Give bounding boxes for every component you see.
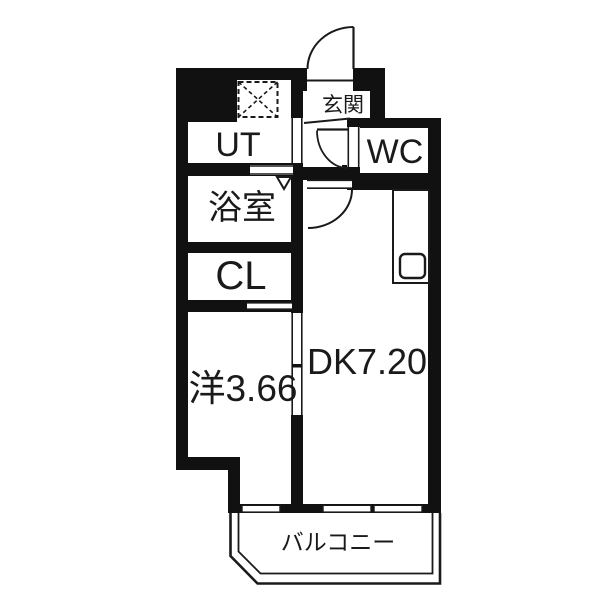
kitchen-sink — [400, 254, 425, 278]
wall-genkan-left — [291, 91, 303, 118]
wall-left-outer — [176, 68, 188, 470]
window-dk-left — [323, 505, 371, 512]
wall-wc-bottom — [347, 173, 441, 190]
label-bathroom: 浴室 — [208, 189, 276, 227]
wall-genkan-left-upper — [291, 68, 307, 91]
wall-wc-top — [347, 118, 441, 128]
wall-top-left — [176, 68, 291, 80]
sliding-door-tick — [292, 364, 303, 368]
wall-middle-lower — [291, 415, 303, 513]
windows — [242, 505, 422, 512]
window-western-room — [242, 505, 280, 512]
wall-middle-upper — [291, 163, 303, 313]
floorplan-svg: 玄関 UT WC 浴室 CL DK7.20 洋3.66 バルコニー — [0, 0, 600, 600]
wall-bathroom-bottom — [176, 242, 303, 253]
wall-genkan-right — [370, 91, 385, 120]
kitchen — [393, 190, 429, 283]
wall-hall-bottom — [303, 167, 347, 180]
floorplan-canvas: 玄関 UT WC 浴室 CL DK7.20 洋3.66 バルコニー — [0, 0, 600, 600]
label-western-room: 洋3.66 — [188, 368, 297, 409]
label-balcony: バルコニー — [281, 529, 396, 555]
label-closet: CL — [215, 254, 266, 298]
label-genkan: 玄関 — [322, 94, 364, 117]
window-dk-right — [374, 505, 422, 512]
label-wc: WC — [367, 133, 424, 171]
label-dk: DK7.20 — [307, 341, 427, 382]
wall-top-right — [353, 68, 385, 91]
label-ut: UT — [215, 126, 260, 164]
